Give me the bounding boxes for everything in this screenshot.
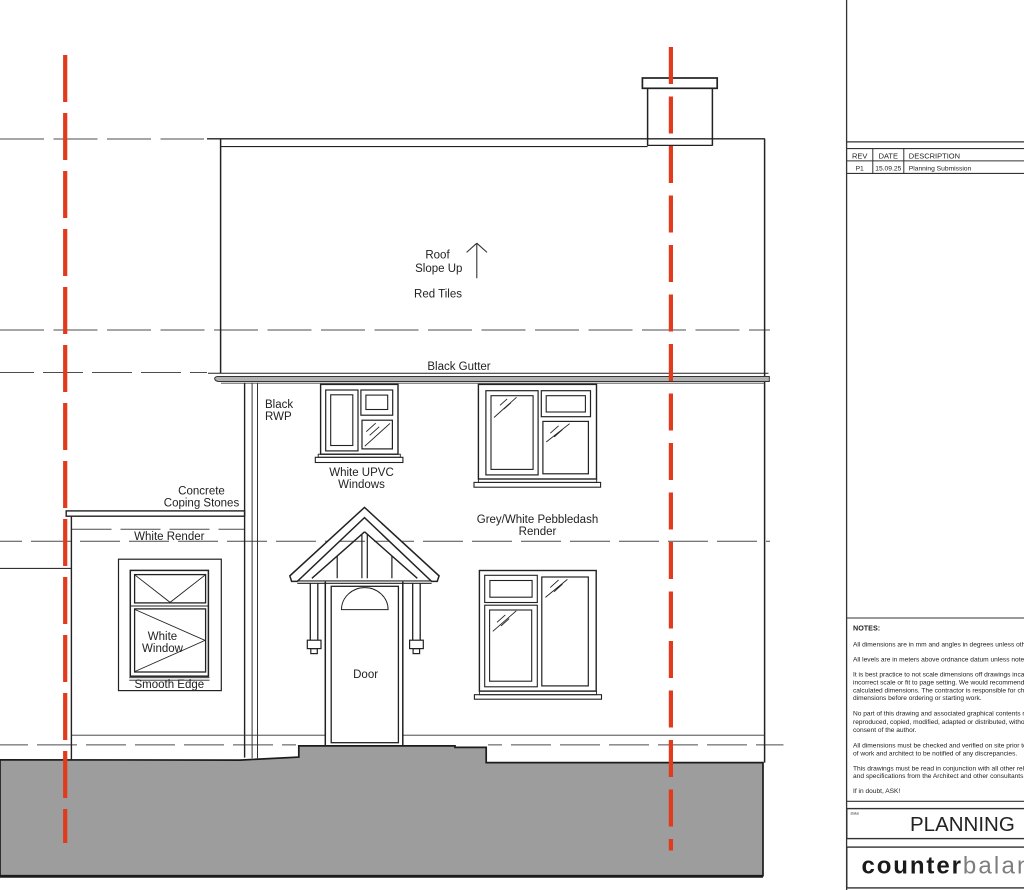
svg-text:No part of this drawing and as: No part of this drawing and associated g…: [853, 710, 1024, 717]
svg-text:PLANNING: PLANNING: [910, 813, 1015, 836]
svg-text:P1: P1: [856, 166, 864, 173]
svg-text:White Render: White Render: [134, 531, 204, 543]
svg-text:If in doubt, ASK!: If in doubt, ASK!: [853, 788, 900, 795]
svg-text:15.09.25: 15.09.25: [875, 166, 901, 173]
svg-text:This drawings must be read in: This drawings must be read in conjunctio…: [853, 765, 1024, 772]
svg-text:incorrect scale or fit to page: incorrect scale or fit to page setting. …: [853, 679, 1024, 686]
svg-text:Window: Window: [142, 643, 184, 655]
svg-text:DESCRIPTION: DESCRIPTION: [909, 152, 960, 161]
svg-text:Coping Stones: Coping Stones: [164, 498, 240, 510]
svg-text:White UPVC: White UPVC: [329, 467, 394, 479]
svg-text:It is best practice to not sca: It is best practice to not scale dimensi…: [853, 671, 1024, 678]
svg-text:All levels are in meters above: All levels are in meters above ordnance …: [853, 657, 1024, 664]
svg-text:Door: Door: [353, 669, 378, 681]
svg-text:Windows: Windows: [338, 479, 385, 491]
svg-text:Planning Submission: Planning Submission: [909, 166, 972, 173]
svg-text:of work and architect to be no: of work and architect to be notified of …: [853, 750, 1017, 757]
svg-text:reproduced, copied, modified,: reproduced, copied, modified, adapted or…: [853, 719, 1024, 726]
svg-text:status: status: [851, 812, 860, 816]
svg-text:Grey/White Pebbledash: Grey/White Pebbledash: [477, 514, 598, 526]
svg-text:White: White: [148, 631, 177, 643]
svg-text:NOTES:: NOTES:: [853, 623, 880, 632]
svg-text:RWP: RWP: [265, 411, 292, 423]
svg-text:DATE: DATE: [879, 152, 898, 161]
svg-text:counterbalance: counterbalance: [862, 852, 1024, 879]
svg-text:Roof: Roof: [425, 249, 450, 261]
svg-text:Render: Render: [519, 526, 557, 538]
svg-text:All dimensions are in mm and a: All dimensions are in mm and angles in d…: [853, 641, 1024, 648]
svg-text:Slope Up: Slope Up: [415, 263, 462, 275]
svg-text:Smooth Edge: Smooth Edge: [134, 679, 204, 691]
svg-text:Black Gutter: Black Gutter: [427, 361, 490, 373]
svg-text:Black: Black: [265, 399, 293, 411]
svg-text:Concrete: Concrete: [178, 486, 225, 498]
svg-text:All dimensions must be checked: All dimensions must be checked and verif…: [853, 742, 1024, 749]
svg-text:REV: REV: [852, 152, 867, 161]
svg-text:dimensions before ordering or: dimensions before ordering or starting w…: [853, 695, 982, 702]
svg-text:calculated dimensions. The con: calculated dimensions. The contractor is…: [853, 687, 1024, 694]
svg-text:Red Tiles: Red Tiles: [414, 288, 462, 300]
svg-text:and specifications from the Ar: and specifications from the Architect an…: [853, 773, 1024, 780]
svg-text:consent of the author.: consent of the author.: [853, 727, 917, 734]
